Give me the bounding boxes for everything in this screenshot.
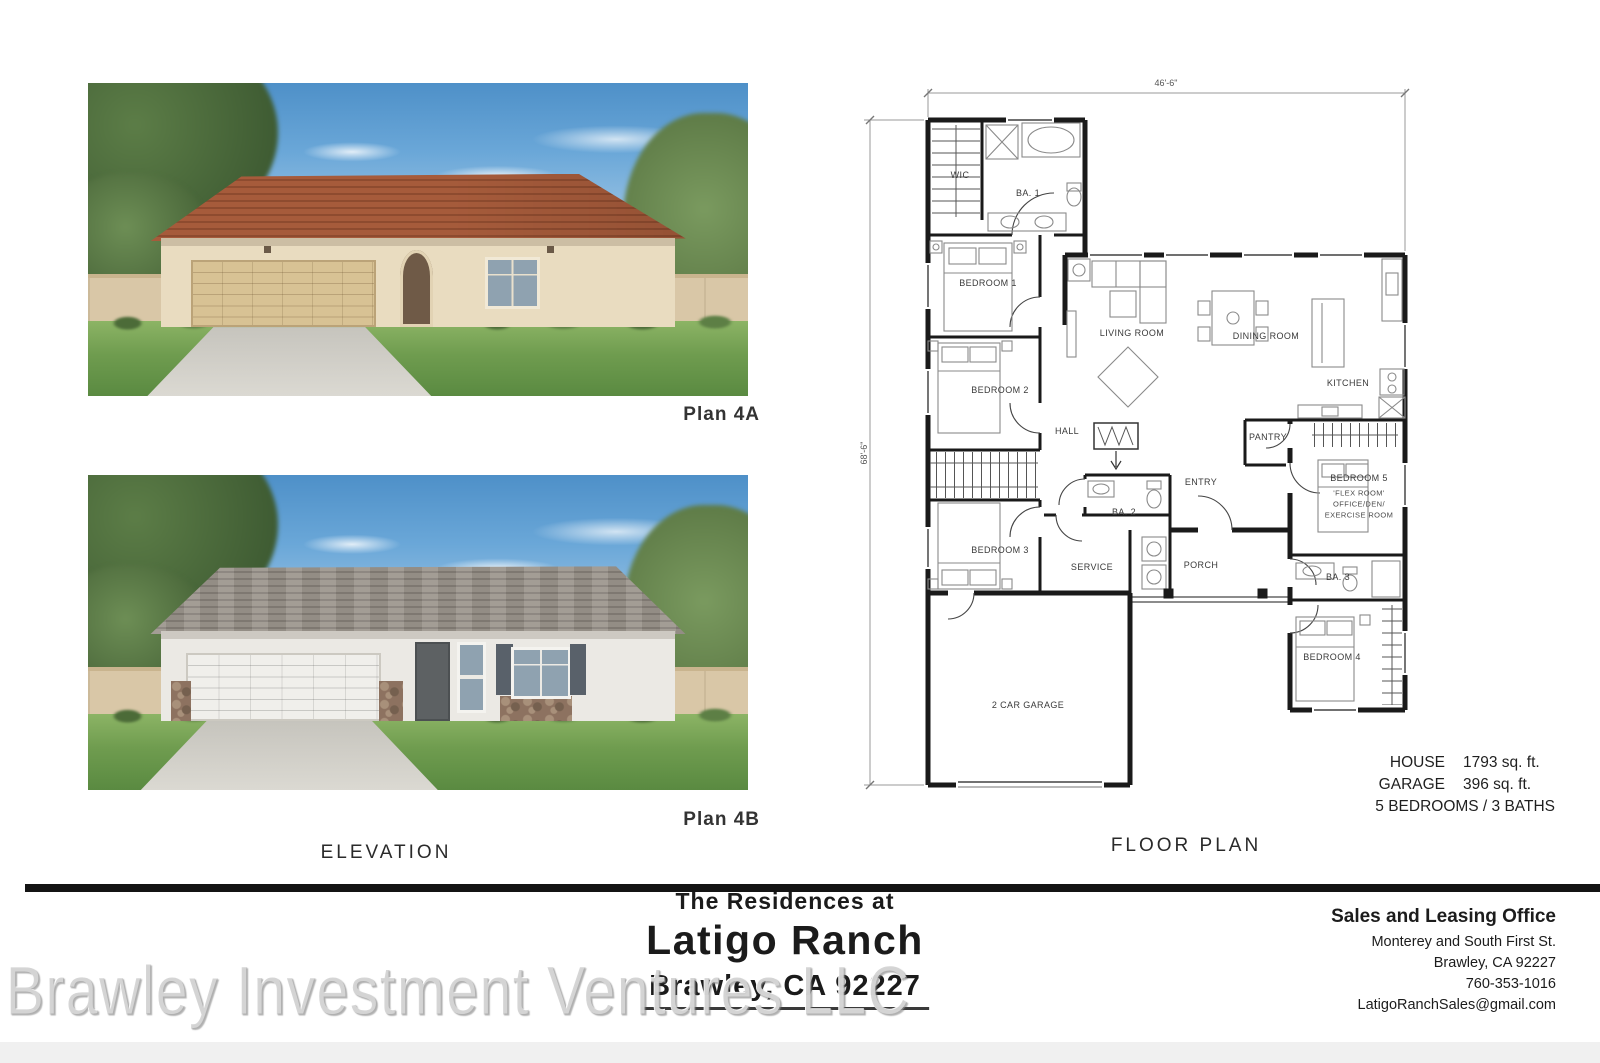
house-elevation-4b — [161, 566, 676, 720]
plan-4b-rendering — [88, 475, 748, 790]
dimension-height-label: 68'-6" — [859, 442, 869, 465]
office-address-2: Brawley, CA 92227 — [1331, 953, 1556, 974]
front-door — [415, 642, 450, 721]
office-email: LatigoRanchSales@gmail.com — [1331, 995, 1556, 1016]
stats-house-row: HOUSE 1793 sq. ft. — [1375, 752, 1555, 774]
dimension-width-label: 46'-6" — [1155, 78, 1178, 88]
stats-house-value: 1793 sq. ft. — [1463, 752, 1555, 774]
front-door — [400, 250, 433, 327]
community-prefix: The Residences at — [641, 888, 929, 915]
stats-house-label: HOUSE — [1390, 752, 1445, 774]
room-label-bedroom-5-alt: EXERCISE ROOM — [1325, 511, 1394, 520]
stone-accent — [379, 681, 402, 721]
office-heading: Sales and Leasing Office — [1331, 906, 1556, 928]
office-phone: 760-353-1016 — [1331, 974, 1556, 995]
shutter — [570, 644, 586, 695]
closet-hatching — [930, 123, 1402, 705]
attic-vent-icon — [264, 246, 271, 253]
floor-plan-section-label: FLOOR PLAN — [1111, 835, 1261, 857]
room-label-wic: WIC — [951, 170, 970, 180]
furniture — [928, 123, 1405, 701]
room-label-bedroom-5: BEDROOM 5 — [1330, 473, 1388, 483]
room-label-bedroom-1: BEDROOM 1 — [959, 278, 1017, 288]
stats-garage-label: GARAGE — [1379, 774, 1445, 796]
flyer-page: Plan 4A Plan 4B ELEVATION FLOOR PLAN — [0, 0, 1600, 1063]
floor-plan: 46'-6" 68'-6" WIC BA. 1 BEDROOM 1 BEDROO… — [860, 75, 1508, 820]
room-label-pantry: PANTRY — [1249, 432, 1287, 442]
stone-accent — [500, 696, 572, 721]
room-label-bedroom-3: BEDROOM 3 — [971, 545, 1029, 555]
room-label-dining-room: DINING ROOM — [1233, 331, 1299, 341]
plan-4a-rendering — [88, 83, 748, 396]
stats-bedrooms-baths: 5 BEDROOMS / 3 BATHS — [1375, 796, 1555, 818]
room-label-ba-2: BA. 2 — [1112, 507, 1136, 517]
office-address-1: Monterey and South First St. — [1331, 932, 1556, 953]
plan-4b-label: Plan 4B — [683, 809, 760, 831]
floor-plan-stats: HOUSE 1793 sq. ft. GARAGE 396 sq. ft. 5 … — [1375, 752, 1555, 818]
room-label-bedroom-4: BEDROOM 4 — [1303, 652, 1361, 662]
stats-garage-value: 396 sq. ft. — [1463, 774, 1555, 796]
room-label-entry: ENTRY — [1185, 477, 1217, 487]
room-label-hall: HALL — [1055, 426, 1079, 436]
tile-roof — [150, 174, 685, 241]
shingle-roof — [150, 566, 685, 634]
room-label-porch: PORCH — [1184, 560, 1219, 570]
room-label-service: SERVICE — [1071, 562, 1113, 572]
room-label-bedroom-5-alt: OFFICE/DEN/ — [1333, 500, 1385, 509]
garage-door — [191, 260, 375, 327]
porch-step — [1130, 589, 1290, 602]
stats-garage-row: GARAGE 396 sq. ft. — [1375, 774, 1555, 796]
window — [511, 647, 571, 699]
house-elevation-4a — [161, 174, 676, 327]
room-label-kitchen: KITCHEN — [1327, 378, 1369, 388]
watermark-text: Brawley Investment Ventures LLC — [6, 952, 911, 1031]
window — [485, 257, 540, 309]
room-label-living-room: LIVING ROOM — [1100, 328, 1164, 338]
room-label-bedroom-2: BEDROOM 2 — [971, 385, 1029, 395]
sales-office-block: Sales and Leasing Office Monterey and So… — [1331, 906, 1556, 1016]
window — [457, 642, 486, 713]
page-bottom-band — [0, 1042, 1600, 1063]
stone-accent — [171, 681, 192, 721]
attic-vent-icon — [547, 246, 554, 253]
room-label-ba-3: BA. 3 — [1326, 572, 1350, 582]
elevation-section-label: ELEVATION — [321, 842, 452, 864]
room-label-garage: 2 CAR GARAGE — [992, 700, 1064, 710]
plan-4a-label: Plan 4A — [683, 404, 760, 426]
room-label-bedroom-5-alt: 'FLEX ROOM' — [1333, 489, 1384, 498]
floor-plan-drawing — [860, 75, 1508, 820]
garage-door — [186, 653, 380, 721]
room-label-ba-1: BA. 1 — [1016, 188, 1040, 198]
